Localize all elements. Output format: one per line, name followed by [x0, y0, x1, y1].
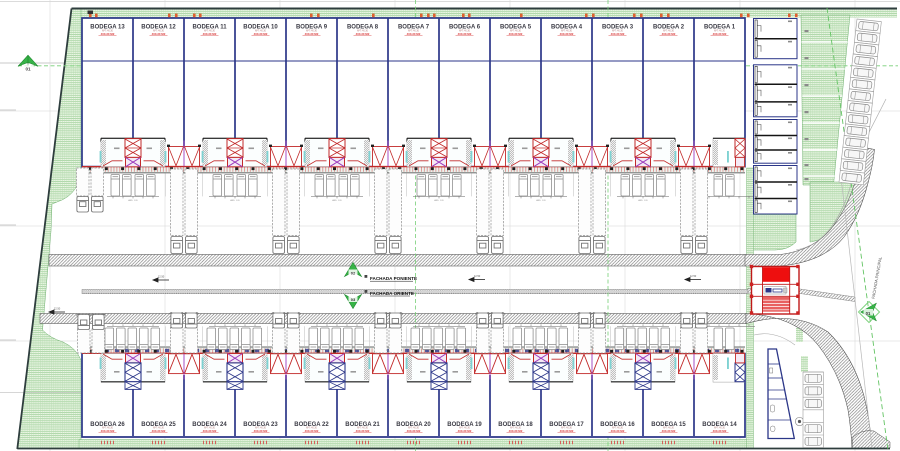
svg-text:400.30 M2: 400.30 M2: [458, 32, 472, 36]
svg-text:400.30 M2: 400.30 M2: [509, 32, 523, 36]
svg-text:BODEGA 6: BODEGA 6: [449, 24, 481, 30]
svg-text:FACHADA ORIENTE: FACHADA ORIENTE: [370, 291, 414, 296]
svg-text:02: 02: [351, 271, 356, 276]
svg-text:AND. 1.20: AND. 1.20: [332, 199, 342, 202]
svg-text:400.30 M2: 400.30 M2: [458, 429, 472, 433]
svg-text:BODEGA 10: BODEGA 10: [243, 24, 278, 30]
svg-text:400.30 M2: 400.30 M2: [356, 32, 370, 36]
svg-text:01: 01: [25, 67, 31, 72]
svg-text:400.30 M2: 400.30 M2: [356, 429, 370, 433]
svg-text:400.30 M2: 400.30 M2: [305, 429, 319, 433]
svg-text:12.50: 12.50: [690, 274, 697, 278]
svg-text:400.30 M2: 400.30 M2: [254, 32, 268, 36]
svg-text:12.50: 12.50: [54, 307, 61, 311]
svg-text:BODEGA 1: BODEGA 1: [704, 24, 736, 30]
svg-text:BODEGA 11: BODEGA 11: [192, 24, 227, 30]
svg-text:400.30 M2: 400.30 M2: [560, 429, 574, 433]
svg-text:400.30 M2: 400.30 M2: [101, 32, 115, 36]
svg-text:BODEGA 3: BODEGA 3: [602, 24, 634, 30]
svg-text:400.30 M2: 400.30 M2: [509, 429, 523, 433]
svg-text:400.30 M2: 400.30 M2: [101, 429, 115, 433]
svg-text:400.30 M2: 400.30 M2: [611, 32, 625, 36]
svg-text:BODEGA 9: BODEGA 9: [296, 24, 328, 30]
svg-text:AND. 1.20: AND. 1.20: [638, 199, 648, 202]
svg-text:AND. 1.20: AND. 1.20: [230, 199, 240, 202]
svg-text:400.30 M2: 400.30 M2: [203, 429, 217, 433]
svg-text:400.30 M2: 400.30 M2: [407, 429, 421, 433]
svg-text:12.50: 12.50: [158, 275, 165, 279]
svg-text:400.30 M2: 400.30 M2: [203, 32, 217, 36]
svg-text:400.30 M2: 400.30 M2: [152, 32, 166, 36]
svg-text:12.50: 12.50: [474, 274, 481, 278]
svg-text:400.30 M2: 400.30 M2: [407, 32, 421, 36]
svg-text:01: 01: [866, 311, 871, 316]
svg-text:BODEGA 13: BODEGA 13: [90, 24, 125, 30]
svg-text:03: 03: [351, 297, 356, 302]
svg-text:AND. 1.20: AND. 1.20: [434, 199, 444, 202]
svg-text:BODEGA 12: BODEGA 12: [141, 24, 176, 30]
svg-text:BODEGA 5: BODEGA 5: [500, 24, 532, 30]
svg-text:400.30 M2: 400.30 M2: [152, 429, 166, 433]
svg-text:BODEGA 2: BODEGA 2: [653, 24, 685, 30]
svg-text:BODEGA 7: BODEGA 7: [398, 24, 430, 30]
svg-text:AND. 1.20: AND. 1.20: [128, 199, 138, 202]
svg-text:400.30 M2: 400.30 M2: [713, 32, 727, 36]
svg-text:400.30 M2: 400.30 M2: [254, 429, 268, 433]
svg-text:BODEGA 8: BODEGA 8: [347, 24, 379, 30]
svg-text:AND. 1.20: AND. 1.20: [536, 199, 546, 202]
svg-text:FACHADA PONIENTE: FACHADA PONIENTE: [370, 276, 417, 281]
svg-text:400.30 M2: 400.30 M2: [305, 32, 319, 36]
svg-text:400.30 M2: 400.30 M2: [713, 429, 727, 433]
svg-text:400.30 M2: 400.30 M2: [560, 32, 574, 36]
svg-text:400.30 M2: 400.30 M2: [662, 32, 676, 36]
svg-text:400.30 M2: 400.30 M2: [662, 429, 676, 433]
svg-text:BODEGA 4: BODEGA 4: [551, 24, 583, 30]
svg-text:400.30 M2: 400.30 M2: [611, 429, 625, 433]
